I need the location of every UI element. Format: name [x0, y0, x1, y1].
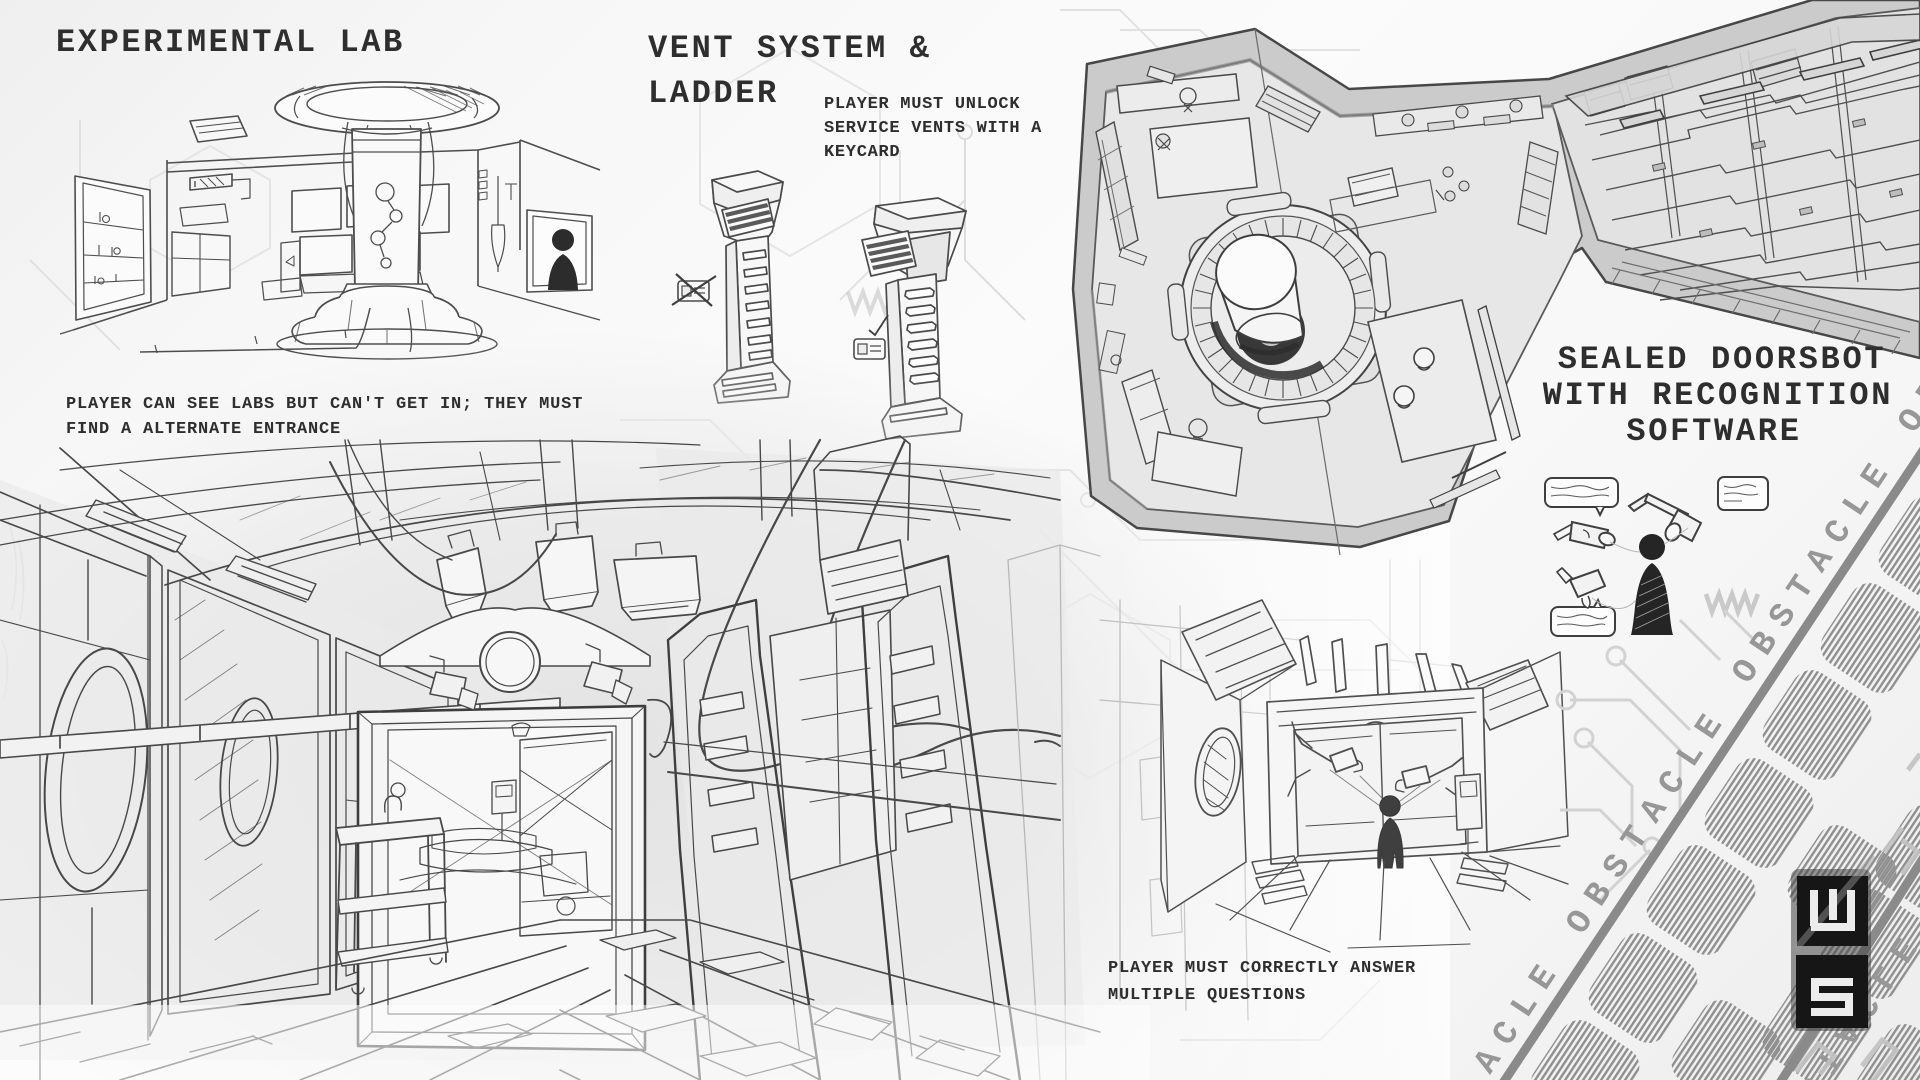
svg-text:LADDER: LADDER: [648, 75, 779, 112]
svg-text:SERVICE VENTS WITH A: SERVICE VENTS WITH A: [824, 119, 1042, 138]
svg-text:EXPERIMENTAL LAB: EXPERIMENTAL LAB: [56, 24, 405, 61]
svg-text:PLAYER CAN SEE LABS BUT CAN'T: PLAYER CAN SEE LABS BUT CAN'T GET IN; TH…: [66, 395, 583, 414]
svg-text:PLAYER MUST UNLOCK: PLAYER MUST UNLOCK: [824, 95, 1020, 114]
svg-text:VENT SYSTEM &: VENT SYSTEM &: [648, 30, 931, 67]
svg-text:PLAYER MUST CORRECTLY ANSWER: PLAYER MUST CORRECTLY ANSWER: [1108, 959, 1416, 978]
svg-text:WITH RECOGNITION: WITH RECOGNITION: [1543, 377, 1893, 414]
svg-text:MULTIPLE QUESTIONS: MULTIPLE QUESTIONS: [1108, 986, 1306, 1005]
svg-text:SOFTWARE: SOFTWARE: [1626, 413, 1801, 450]
svg-text:KEYCARD: KEYCARD: [824, 143, 900, 162]
svg-text:FIND A ALTERNATE ENTRANCE: FIND A ALTERNATE ENTRANCE: [66, 420, 341, 439]
svg-text:SEALED DOORSBOT: SEALED DOORSBOT: [1558, 341, 1887, 378]
